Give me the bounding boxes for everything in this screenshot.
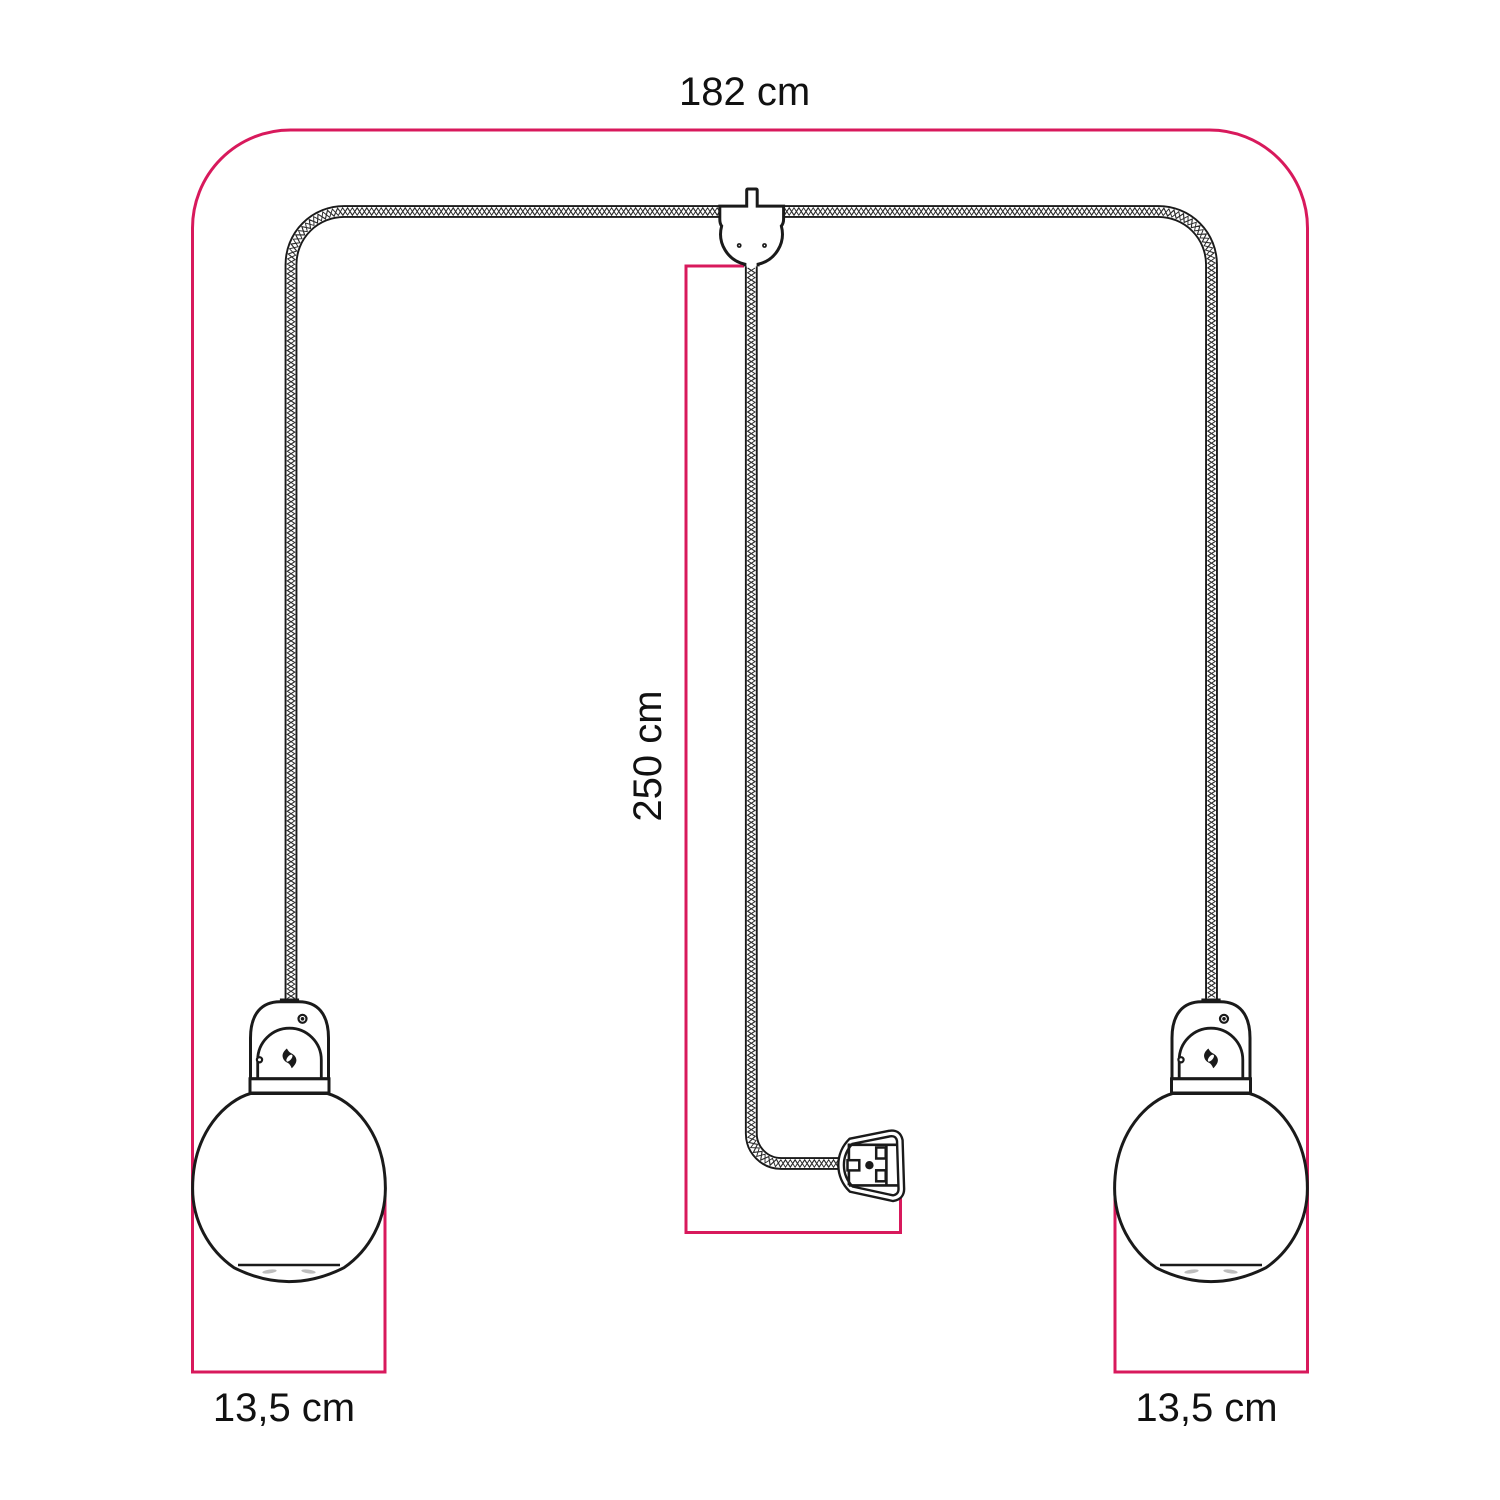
svg-text:250 cm: 250 cm [626, 690, 670, 821]
svg-text:13,5 cm: 13,5 cm [213, 1386, 355, 1430]
svg-text:13,5 cm: 13,5 cm [1135, 1386, 1277, 1430]
svg-text:182 cm: 182 cm [679, 70, 810, 114]
